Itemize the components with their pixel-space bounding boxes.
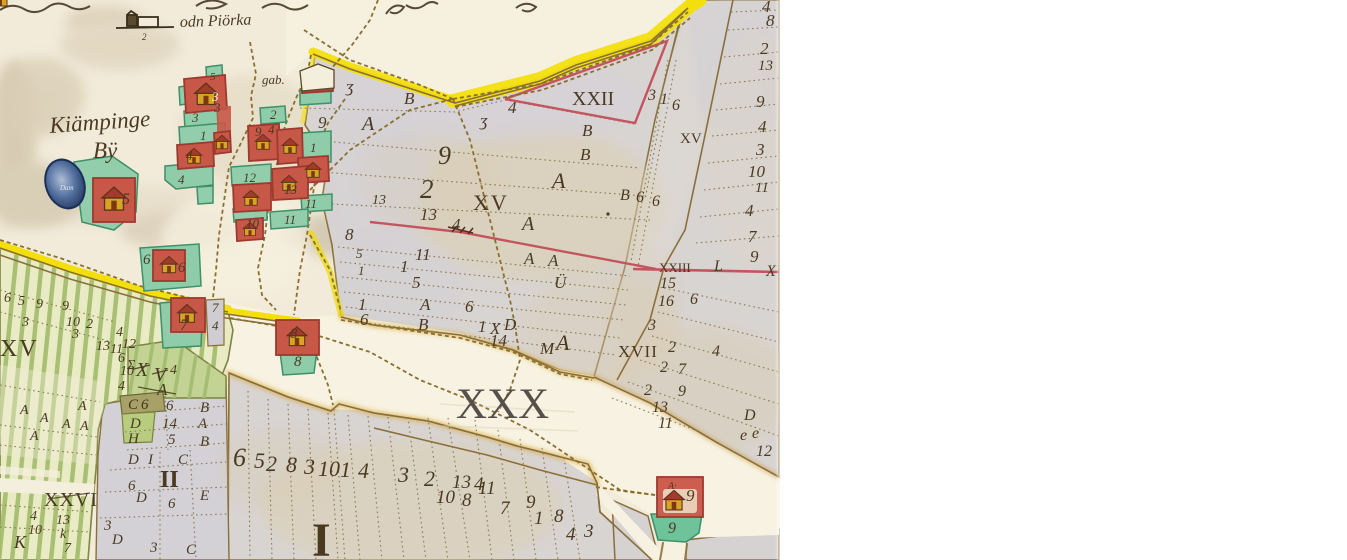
svg-text:A: A [19,403,29,418]
svg-text:2: 2 [760,39,769,58]
svg-text:1: 1 [400,257,409,276]
svg-text:6: 6 [178,260,186,276]
svg-text:13: 13 [758,58,773,74]
svg-text:B: B [200,400,209,416]
svg-text:2: 2 [420,174,434,204]
svg-text:9: 9 [756,92,765,111]
svg-text:6: 6 [143,252,151,268]
svg-text:4: 4 [745,201,754,220]
svg-text:XV: XV [473,190,509,215]
svg-text:5: 5 [412,273,421,292]
svg-text:C: C [128,397,139,413]
svg-text:13: 13 [372,193,386,208]
svg-text:3: 3 [755,140,765,159]
svg-text:6: 6 [141,397,149,413]
svg-text:16: 16 [658,293,674,310]
svg-text:6: 6 [4,291,11,306]
svg-text:4: 4 [508,98,517,117]
svg-text:A: A [156,380,168,399]
svg-text:A: A [554,330,570,355]
svg-text:5: 5 [18,294,25,309]
svg-text:Bÿ: Bÿ [93,138,118,163]
svg-text:A: A [523,249,535,268]
svg-text:M: M [539,339,555,358]
svg-text:9: 9 [255,124,262,139]
svg-text:A: A [61,417,71,432]
svg-text:E: E [199,488,209,504]
svg-text:B: B [404,89,415,108]
svg-text:13: 13 [420,205,437,224]
svg-text:3: 3 [21,315,29,330]
svg-text:1: 1 [200,128,207,143]
svg-text:A: A [79,419,89,434]
svg-text:6: 6 [233,443,246,472]
svg-text:12: 12 [243,170,257,185]
svg-text:9: 9 [678,383,686,400]
svg-text:3: 3 [71,327,79,342]
svg-text:A: A [547,251,559,270]
svg-text:II: II [160,467,179,493]
svg-text:1: 1 [660,91,668,108]
svg-text:k: k [60,527,67,542]
svg-text:C: C [186,542,197,558]
svg-text:4: 4 [566,524,576,545]
svg-text:XV: XV [680,131,702,147]
svg-text:B: B [582,121,593,140]
svg-text:3: 3 [303,454,315,479]
svg-text:4: 4 [186,148,193,163]
svg-text:8: 8 [554,506,564,527]
svg-text:A: A [77,399,87,414]
svg-text:7: 7 [180,317,189,334]
svg-text:14: 14 [162,416,178,432]
svg-text:4: 4 [452,215,461,234]
svg-text:3: 3 [149,540,158,556]
svg-text:B: B [580,145,591,164]
svg-text:1: 1 [310,140,317,155]
svg-text:7: 7 [500,498,511,519]
svg-text:10: 10 [28,523,42,538]
svg-text:9: 9 [438,141,451,170]
svg-text:5: 5 [122,191,130,208]
svg-text:D: D [135,490,147,506]
svg-text:I: I [312,514,331,560]
svg-text:B: B [620,187,630,204]
svg-text:9: 9 [686,486,695,505]
svg-text:11: 11 [755,180,769,196]
svg-text:H: H [127,431,140,447]
svg-text:2: 2 [644,382,652,399]
svg-text:14: 14 [490,331,508,350]
svg-text:Dam: Dam [59,184,74,192]
svg-text:I: I [147,452,154,468]
svg-text:6: 6 [166,398,174,414]
svg-text:e: e [752,425,759,442]
svg-text:2: 2 [266,451,277,476]
svg-text:5: 5 [254,448,265,473]
svg-text:XXX: XXX [456,381,549,428]
svg-text:1: 1 [534,508,544,529]
svg-text:2: 2 [660,359,668,376]
svg-text:1: 1 [358,263,365,278]
svg-text:K: K [13,532,27,552]
svg-text:10: 10 [436,487,456,508]
svg-text:3: 3 [583,521,594,542]
svg-text:9: 9 [750,247,759,266]
svg-text:13: 13 [96,339,110,354]
svg-text:6: 6 [360,310,369,329]
svg-text:11: 11 [415,245,431,264]
svg-text:6: 6 [652,193,660,210]
svg-text:13: 13 [56,513,70,528]
svg-text:8: 8 [294,354,302,370]
svg-text:11: 11 [305,196,317,211]
svg-text:8: 8 [286,452,297,477]
svg-text:2: 2 [270,107,277,122]
svg-text:4: 4 [358,458,369,483]
svg-text:A: A [419,295,431,314]
svg-text:7: 7 [212,300,219,315]
svg-text:13: 13 [284,182,298,197]
svg-text:5: 5 [210,71,216,83]
svg-text:B: B [418,315,429,334]
svg-text:8: 8 [766,11,775,30]
svg-text:2: 2 [142,32,147,42]
svg-text:2: 2 [424,466,435,491]
svg-text:8: 8 [290,326,298,342]
svg-text:D: D [129,416,141,432]
svg-text:4: 4 [212,318,219,333]
svg-text:9: 9 [318,113,327,132]
svg-text:C: C [178,452,189,468]
svg-text:8: 8 [345,225,354,244]
svg-text:13: 13 [652,399,668,416]
svg-text:3: 3 [103,518,112,534]
svg-text:XXVI: XXVI [44,489,98,511]
svg-text:6: 6 [636,189,644,206]
svg-text:10: 10 [246,216,260,231]
svg-text:6: 6 [690,291,698,308]
svg-text:B: B [200,434,209,450]
svg-text:A: A [39,411,49,426]
svg-text:D: D [127,452,139,468]
svg-text:X: X [135,359,149,381]
svg-text:1: 1 [340,457,351,482]
svg-text:A: A [550,168,566,193]
svg-text:D: D [743,407,756,424]
svg-text:2: 2 [86,317,93,332]
svg-text:4: 4 [268,122,275,137]
svg-text:10: 10 [748,162,766,181]
svg-text:9: 9 [36,297,43,312]
svg-text:7: 7 [64,541,72,556]
svg-text:9: 9 [668,520,676,537]
svg-text:11: 11 [658,415,673,432]
svg-text:6: 6 [672,97,680,114]
svg-text:A: A [520,213,535,235]
svg-text:XVII: XVII [618,342,658,361]
svg-text:odn Piörka: odn Piörka [180,12,252,31]
svg-text:gab.: gab. [262,72,285,87]
svg-text:2: 2 [668,339,676,356]
svg-text:ʒ: ʒ [344,77,354,96]
svg-text:11: 11 [478,478,496,499]
svg-text:5: 5 [168,432,176,448]
svg-text:7: 7 [678,361,687,378]
svg-text:Σ: Σ [126,358,136,373]
svg-text:D: D [111,532,123,548]
svg-text:XXII: XXII [572,88,614,110]
svg-text:A: A [29,429,39,444]
svg-text:4: 4 [170,363,177,378]
svg-text:Ü: Ü [554,273,568,292]
svg-text:XV: XV [0,336,39,362]
svg-text:12: 12 [756,443,772,460]
svg-text:9: 9 [62,299,69,314]
svg-text:3: 3 [647,317,656,334]
svg-text:4: 4 [118,379,125,394]
svg-text:4: 4 [30,509,37,524]
svg-text:A·: A· [667,481,677,492]
svg-text:10: 10 [318,456,340,481]
svg-text:3: 3 [647,87,656,104]
svg-text:A: A [360,113,375,135]
svg-text:e: e [740,427,747,444]
svg-text:3: 3 [213,100,221,115]
svg-text:L: L [713,258,723,275]
svg-text:6: 6 [465,297,474,316]
svg-text:6: 6 [168,496,176,512]
svg-text:ʒ: ʒ [478,111,488,130]
svg-text:3: 3 [191,110,199,125]
svg-text:8: 8 [462,490,472,511]
svg-text:15: 15 [660,275,676,292]
svg-text:3: 3 [397,462,409,487]
svg-text:12: 12 [122,337,136,352]
svg-text:A: A [197,416,208,432]
svg-text:11: 11 [284,212,296,227]
svg-text:1: 1 [478,317,487,336]
svg-text:4: 4 [758,117,767,136]
svg-text:6: 6 [128,478,136,494]
svg-text:4: 4 [178,172,185,187]
svg-text:4: 4 [712,343,720,360]
svg-text:5: 5 [356,246,363,261]
svg-text:XXIII: XXIII [659,260,691,275]
